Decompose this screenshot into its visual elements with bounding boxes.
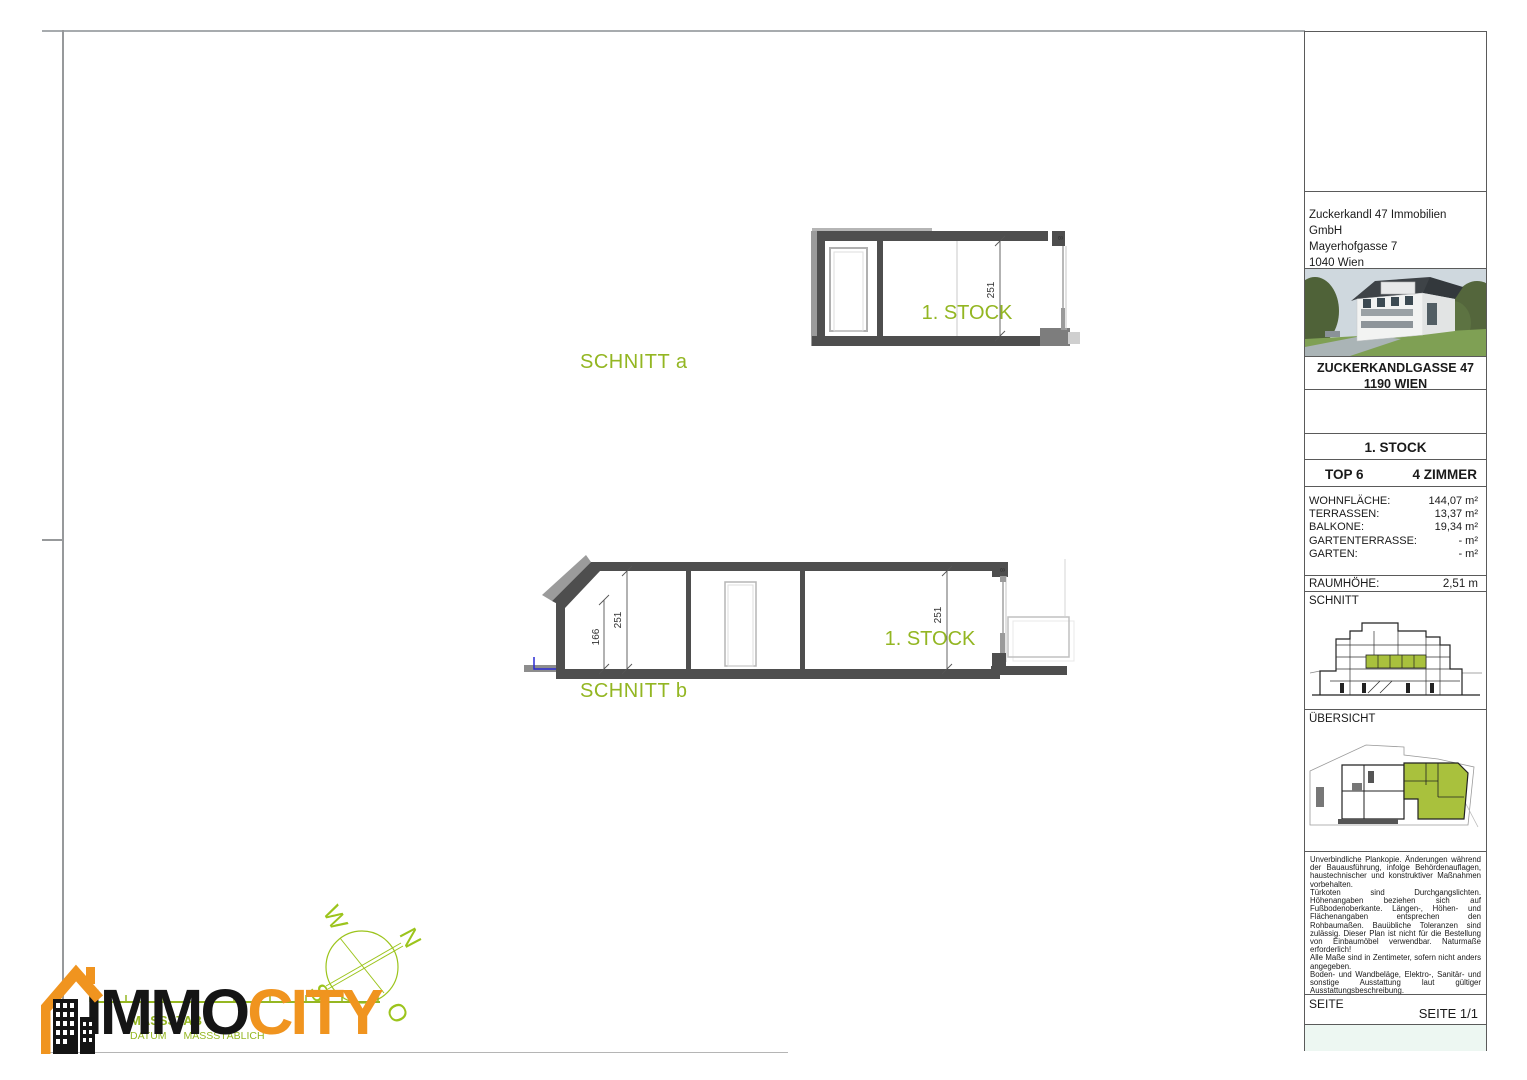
title-block-panel: Zuckerkandl 47 Immobilien GmbH Mayerhofg… [1304, 31, 1487, 1051]
panel-blank-mid [1305, 389, 1486, 433]
door-outline [725, 582, 756, 666]
area-label: TERRASSEN: [1309, 508, 1379, 521]
project-subtitle: 1190 WIEN [1305, 377, 1486, 390]
highlighted-unit [1404, 763, 1468, 819]
floor-title-box: 1. STOCK [1305, 433, 1486, 459]
project-title-box: ZUCKERKANDLGASSE 47 1190 WIEN [1305, 356, 1486, 389]
room-label: 1. STOCK [922, 302, 1013, 324]
corner-dim: 8 [998, 568, 1005, 572]
compass-west-label: W [317, 901, 353, 935]
legal-paragraph: Türkoten sind Durchgangslichten. Höhenan… [1310, 889, 1481, 955]
building-photo-render [1305, 269, 1486, 356]
dim-label-166: 166 [591, 628, 602, 645]
schnitt-a-title: SCHNITT a [580, 351, 687, 374]
table-row: WOHNFLÄCHE: 144,07 m² [1309, 495, 1478, 508]
door-outline [830, 248, 867, 331]
area-table: WOHNFLÄCHE: 144,07 m² TERRASSEN: 13,37 m… [1305, 486, 1486, 575]
area-value: - m² [1458, 535, 1478, 548]
seite-value: SEITE 1/1 [1419, 1006, 1478, 1021]
unit-number: TOP 6 [1325, 467, 1364, 482]
company-street: Mayerhofgasse 7 [1309, 239, 1482, 255]
company-name: Zuckerkandl 47 Immobilien GmbH [1309, 207, 1482, 239]
frame-top-line [42, 30, 1305, 32]
uebersicht-thumbnail [1308, 727, 1483, 839]
floor-title: 1. STOCK [1364, 440, 1426, 455]
highlighted-floor [1366, 655, 1426, 668]
unit-box: TOP 6 4 ZIMMER [1305, 459, 1486, 486]
area-label: BALKONE: [1309, 521, 1364, 534]
schnitt-thumbnail-box: SCHNITT [1305, 591, 1486, 709]
area-value: 144,07 m² [1428, 495, 1478, 508]
panel-blank-top [1305, 32, 1486, 191]
logo-immo: IMMO [85, 976, 247, 1048]
area-value: - m² [1458, 548, 1478, 561]
panel-footer-tint [1305, 1024, 1486, 1051]
seite-label: SEITE [1309, 997, 1344, 1011]
legal-paragraph: Unverbindliche Plankopie. Änderungen wäh… [1310, 856, 1481, 889]
uebersicht-section-label: ÜBERSICHT [1305, 710, 1486, 725]
legal-paragraph: Boden- und Wandbeläge, Elektro-, Sanitär… [1310, 971, 1481, 994]
company-info: Zuckerkandl 47 Immobilien GmbH Mayerhofg… [1305, 191, 1486, 268]
legal-notes: Unverbindliche Plankopie. Änderungen wäh… [1305, 851, 1486, 994]
dim-label-251-right: 251 [933, 606, 944, 623]
logo-city: CITY [247, 976, 381, 1048]
schnitt-b-title: SCHNITT b [580, 680, 687, 703]
table-row: GARTEN: - m² [1309, 548, 1478, 561]
uebersicht-thumbnail-box: ÜBERSICHT [1305, 709, 1486, 851]
dim-label-251: 251 [986, 281, 997, 298]
frame-left-line [62, 30, 64, 1052]
project-title: ZUCKERKANDLGASSE 47 [1305, 361, 1486, 377]
table-row: BALKONE: 19,34 m² [1309, 521, 1478, 534]
schnitt-thumbnail [1310, 609, 1482, 704]
frame-tick [42, 539, 62, 541]
area-label: GARTENTERRASSE: [1309, 535, 1417, 548]
building-photo [1305, 268, 1486, 356]
room-label: 1. STOCK [885, 628, 976, 650]
area-value: 19,34 m² [1435, 521, 1478, 534]
corner-dim: 8 [1056, 236, 1063, 240]
logo-house-icon [41, 957, 103, 1055]
logo-block: MASSSTAB DATUM MASSSTÄBLICH IMMOCITY [45, 952, 405, 1057]
area-label: GARTEN: [1309, 548, 1358, 561]
schnitt-section-label: SCHNITT [1305, 592, 1486, 607]
area-label: WOHNFLÄCHE: [1309, 495, 1390, 508]
room-count: 4 ZIMMER [1412, 467, 1477, 482]
company-city: 1040 Wien [1309, 255, 1482, 268]
legal-paragraph: Alle Maße sind in Zentimeter, sofern nic… [1310, 954, 1481, 970]
dim-label-251-left: 251 [613, 611, 624, 628]
room-height-row: RAUMHÖHE: 2,51 m [1305, 575, 1486, 591]
table-row: GARTENTERRASSE: - m² [1309, 535, 1478, 548]
logo-wordmark: IMMOCITY [85, 980, 381, 1044]
table-row: TERRASSEN: 13,37 m² [1309, 508, 1478, 521]
seite-box: SEITE SEITE 1/1 [1305, 994, 1486, 1024]
room-height-label: RAUMHÖHE: [1309, 578, 1379, 591]
room-height-value: 2,51 m [1443, 578, 1478, 591]
schnitt-a-drawing: 251 8 1. STOCK [790, 218, 1090, 363]
balcony-outline [1008, 617, 1069, 657]
area-value: 13,37 m² [1435, 508, 1478, 521]
